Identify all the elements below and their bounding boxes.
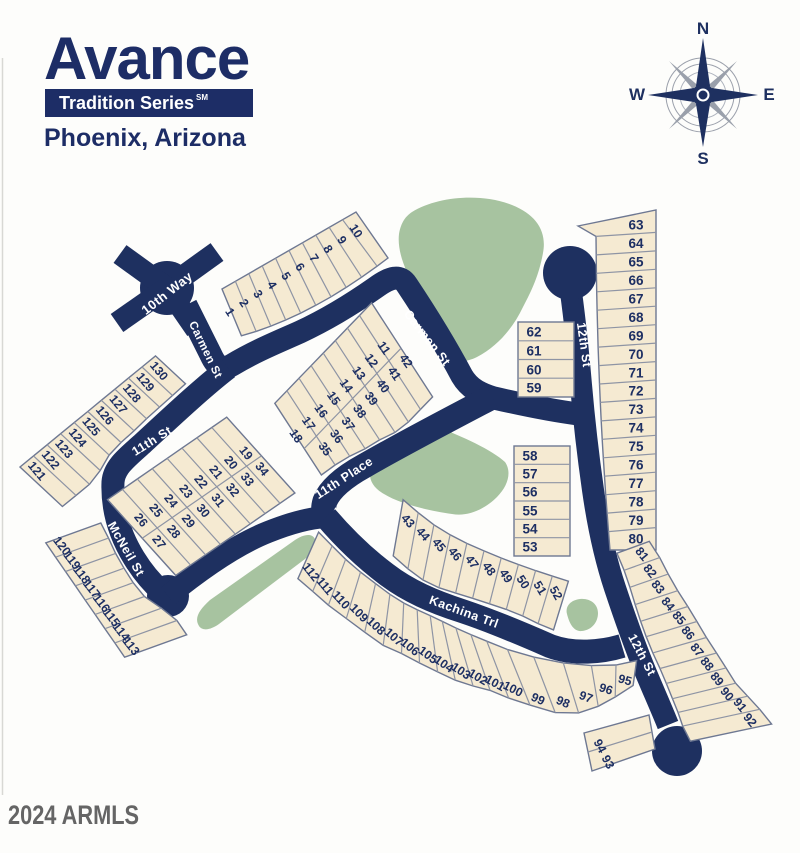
svg-text:53: 53	[522, 540, 538, 555]
svg-text:73: 73	[628, 402, 644, 417]
svg-text:70: 70	[628, 347, 643, 362]
svg-text:2024 ARMLS: 2024 ARMLS	[8, 800, 139, 830]
svg-text:64: 64	[628, 236, 644, 251]
svg-text:77: 77	[628, 476, 643, 491]
svg-text:65: 65	[628, 255, 644, 270]
svg-text:54: 54	[522, 522, 538, 537]
svg-text:N: N	[697, 19, 709, 38]
svg-text:72: 72	[628, 384, 643, 399]
svg-text:62: 62	[526, 325, 541, 340]
svg-text:SM: SM	[196, 93, 208, 102]
svg-text:75: 75	[628, 439, 644, 454]
svg-text:69: 69	[628, 328, 643, 343]
svg-text:Phoenix, Arizona: Phoenix, Arizona	[44, 124, 247, 152]
svg-text:79: 79	[628, 513, 643, 528]
svg-text:60: 60	[526, 363, 541, 378]
svg-text:68: 68	[628, 310, 644, 325]
svg-text:59: 59	[526, 381, 541, 396]
svg-text:78: 78	[628, 494, 644, 509]
svg-text:Avance: Avance	[44, 25, 249, 92]
svg-text:57: 57	[522, 467, 537, 482]
svg-text:56: 56	[522, 485, 538, 500]
svg-text:61: 61	[526, 344, 542, 359]
svg-text:E: E	[763, 85, 774, 104]
svg-text:66: 66	[628, 273, 644, 288]
svg-text:74: 74	[628, 421, 644, 436]
svg-text:67: 67	[628, 292, 643, 307]
svg-text:W: W	[629, 85, 646, 104]
svg-text:63: 63	[628, 218, 644, 233]
svg-text:76: 76	[628, 458, 644, 473]
svg-text:55: 55	[522, 504, 538, 519]
svg-text:58: 58	[522, 449, 538, 464]
svg-text:S: S	[697, 149, 708, 168]
svg-text:71: 71	[628, 365, 644, 380]
svg-text:Tradition Series: Tradition Series	[59, 93, 194, 113]
